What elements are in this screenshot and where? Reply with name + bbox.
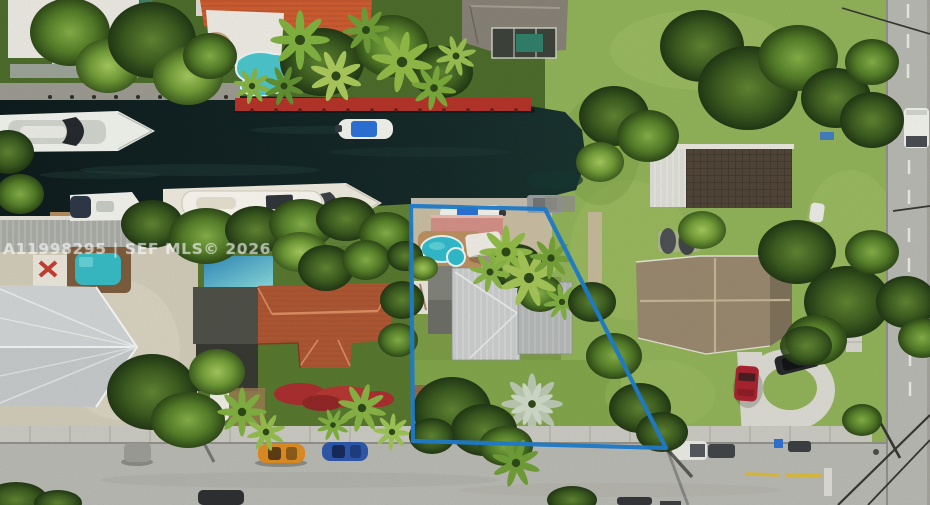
scene-canvas [0, 0, 930, 505]
photo-grain [0, 0, 930, 505]
aerial-listing-photo: A11998295 | SEF MLS© 2026 [0, 0, 930, 505]
